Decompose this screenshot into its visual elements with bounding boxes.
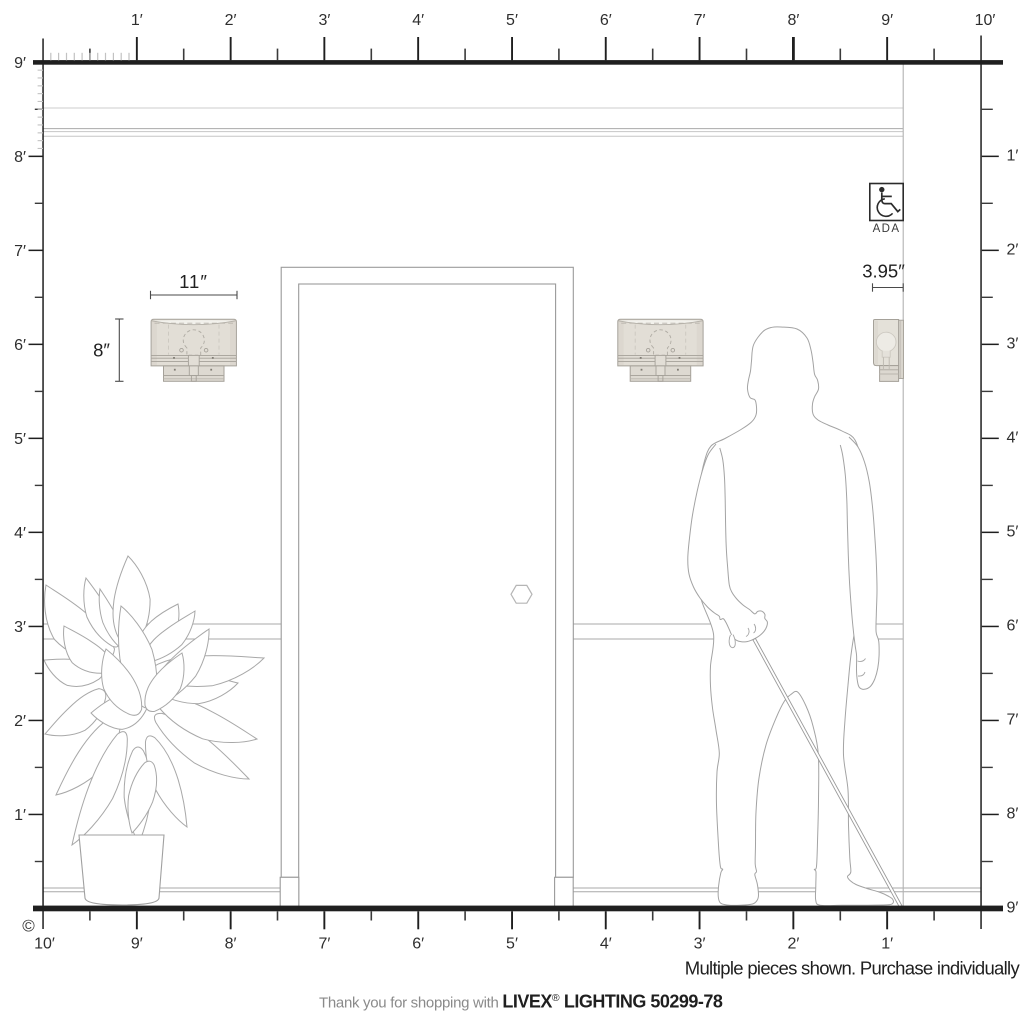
svg-text:2′: 2′ xyxy=(14,713,26,730)
svg-text:3′: 3′ xyxy=(694,936,706,953)
svg-text:8′: 8′ xyxy=(787,12,799,29)
svg-text:Thank you for shopping with LI: Thank you for shopping with LIVEX® LIGHT… xyxy=(319,992,723,1012)
svg-text:2′: 2′ xyxy=(1007,241,1019,258)
svg-text:©: © xyxy=(22,917,35,936)
svg-text:Multiple pieces shown. Purcha: Multiple pieces shown. Purchase individu… xyxy=(685,958,1021,979)
svg-text:4′: 4′ xyxy=(1007,429,1019,446)
svg-text:8′: 8′ xyxy=(1007,806,1019,823)
svg-text:6′: 6′ xyxy=(1007,617,1019,634)
svg-text:2′: 2′ xyxy=(225,12,237,29)
svg-text:7′: 7′ xyxy=(1007,711,1019,728)
svg-text:8′: 8′ xyxy=(225,936,237,953)
svg-text:9′: 9′ xyxy=(14,55,26,72)
svg-text:6′: 6′ xyxy=(412,936,424,953)
svg-text:ADA: ADA xyxy=(873,223,901,235)
svg-text:3′: 3′ xyxy=(1007,335,1019,352)
svg-text:1′: 1′ xyxy=(1007,147,1019,164)
svg-text:4′: 4′ xyxy=(600,936,612,953)
svg-text:3′: 3′ xyxy=(318,12,330,29)
svg-text:3′: 3′ xyxy=(14,619,26,636)
svg-text:7′: 7′ xyxy=(694,12,706,29)
svg-text:4′: 4′ xyxy=(412,12,424,29)
svg-text:9′: 9′ xyxy=(1007,900,1019,917)
svg-text:5′: 5′ xyxy=(506,12,518,29)
svg-text:5′: 5′ xyxy=(1007,523,1019,540)
svg-text:6′: 6′ xyxy=(14,337,26,354)
svg-text:10′: 10′ xyxy=(975,12,996,29)
svg-text:8′: 8′ xyxy=(14,149,26,166)
svg-text:9′: 9′ xyxy=(131,936,143,953)
svg-text:5′: 5′ xyxy=(506,936,518,953)
svg-text:9′: 9′ xyxy=(881,12,893,29)
svg-text:11″: 11″ xyxy=(179,271,208,292)
svg-text:1′: 1′ xyxy=(881,936,893,953)
svg-text:7′: 7′ xyxy=(14,243,26,260)
svg-text:6′: 6′ xyxy=(600,12,612,29)
svg-text:5′: 5′ xyxy=(14,431,26,448)
svg-text:10′: 10′ xyxy=(34,936,55,953)
svg-text:3.95″: 3.95″ xyxy=(862,261,905,282)
svg-text:4′: 4′ xyxy=(14,525,26,542)
svg-text:1′: 1′ xyxy=(131,12,143,29)
svg-text:8″: 8″ xyxy=(93,340,110,361)
svg-text:1′: 1′ xyxy=(14,807,26,824)
svg-text:7′: 7′ xyxy=(318,936,330,953)
svg-text:2′: 2′ xyxy=(787,936,799,953)
